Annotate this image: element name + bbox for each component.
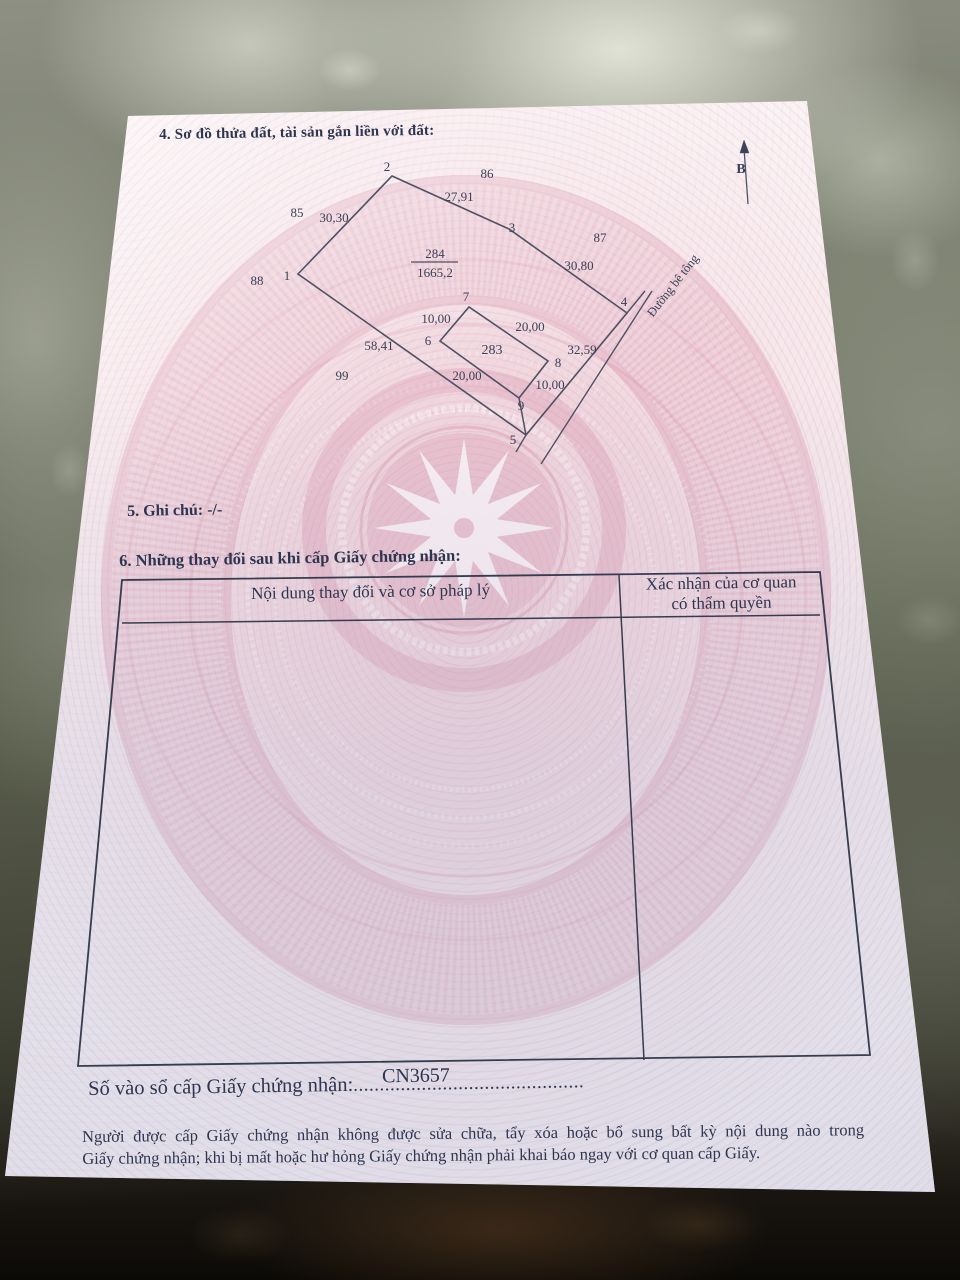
diagram-label: 9 [518, 398, 525, 413]
road-edge-ext-bottom [516, 435, 526, 452]
north-arrow-head [740, 140, 749, 153]
diagram-label: 85 [291, 205, 304, 220]
certificate-warning-note: Người được cấp Giấy chứng nhận không đượ… [82, 1119, 864, 1171]
diagram-label: 10,00 [535, 377, 564, 392]
table-col2-header-line1: Xác nhận của cơ quan [621, 572, 821, 595]
diagram-label: 99 [336, 368, 349, 383]
diagram-label: 87 [594, 230, 608, 245]
diagram-label: 86 [481, 166, 495, 181]
table-outer-border [78, 572, 870, 1066]
diagram-label: 4 [621, 294, 628, 309]
table-column-divider [619, 575, 644, 1060]
diagram-label: 284 [425, 246, 445, 261]
diagram-label: 1665,2 [417, 265, 453, 280]
diagram-label: 20,00 [452, 368, 481, 383]
table-col2-header: Xác nhận của cơ quan có thẩm quyền [621, 572, 822, 615]
diagram-label: 283 [482, 343, 503, 358]
diagram-label: 1 [284, 268, 291, 283]
section5-title: 5. Ghi chú: -/- [127, 502, 222, 521]
diagram-label: 58,41 [364, 338, 393, 353]
diagram-label: 8 [555, 355, 562, 370]
diagram-label: 5 [510, 432, 517, 447]
diagram-label: 27,91 [444, 189, 473, 204]
diagram-label: Đường bê tông [644, 251, 702, 319]
registry-label: Số vào sổ cấp Giấy chứng nhận: [88, 1074, 353, 1100]
diagram-label: 88 [251, 273, 264, 288]
road-edge-ext-top [627, 291, 645, 313]
diagram-label: 32,59 [567, 342, 596, 357]
table-col2-header-line2: có thẩm quyền [621, 592, 821, 615]
diagram-label: B [736, 162, 745, 177]
diagram-label: 30,30 [319, 210, 348, 225]
diagram-label: 20,00 [515, 319, 544, 334]
certificate-page: 28627,918530,303872841665,230,801884Đườn… [0, 0, 960, 1280]
table-header-separator [122, 615, 820, 623]
diagram-label: 30,80 [564, 258, 593, 273]
diagram-label: 6 [425, 333, 432, 348]
diagram-label: 3 [509, 220, 516, 235]
diagram-label: 7 [463, 289, 470, 304]
registry-number: CN3657 [382, 1064, 450, 1088]
diagram-label: 2 [384, 159, 391, 174]
diagram-label: 10,00 [421, 311, 450, 326]
